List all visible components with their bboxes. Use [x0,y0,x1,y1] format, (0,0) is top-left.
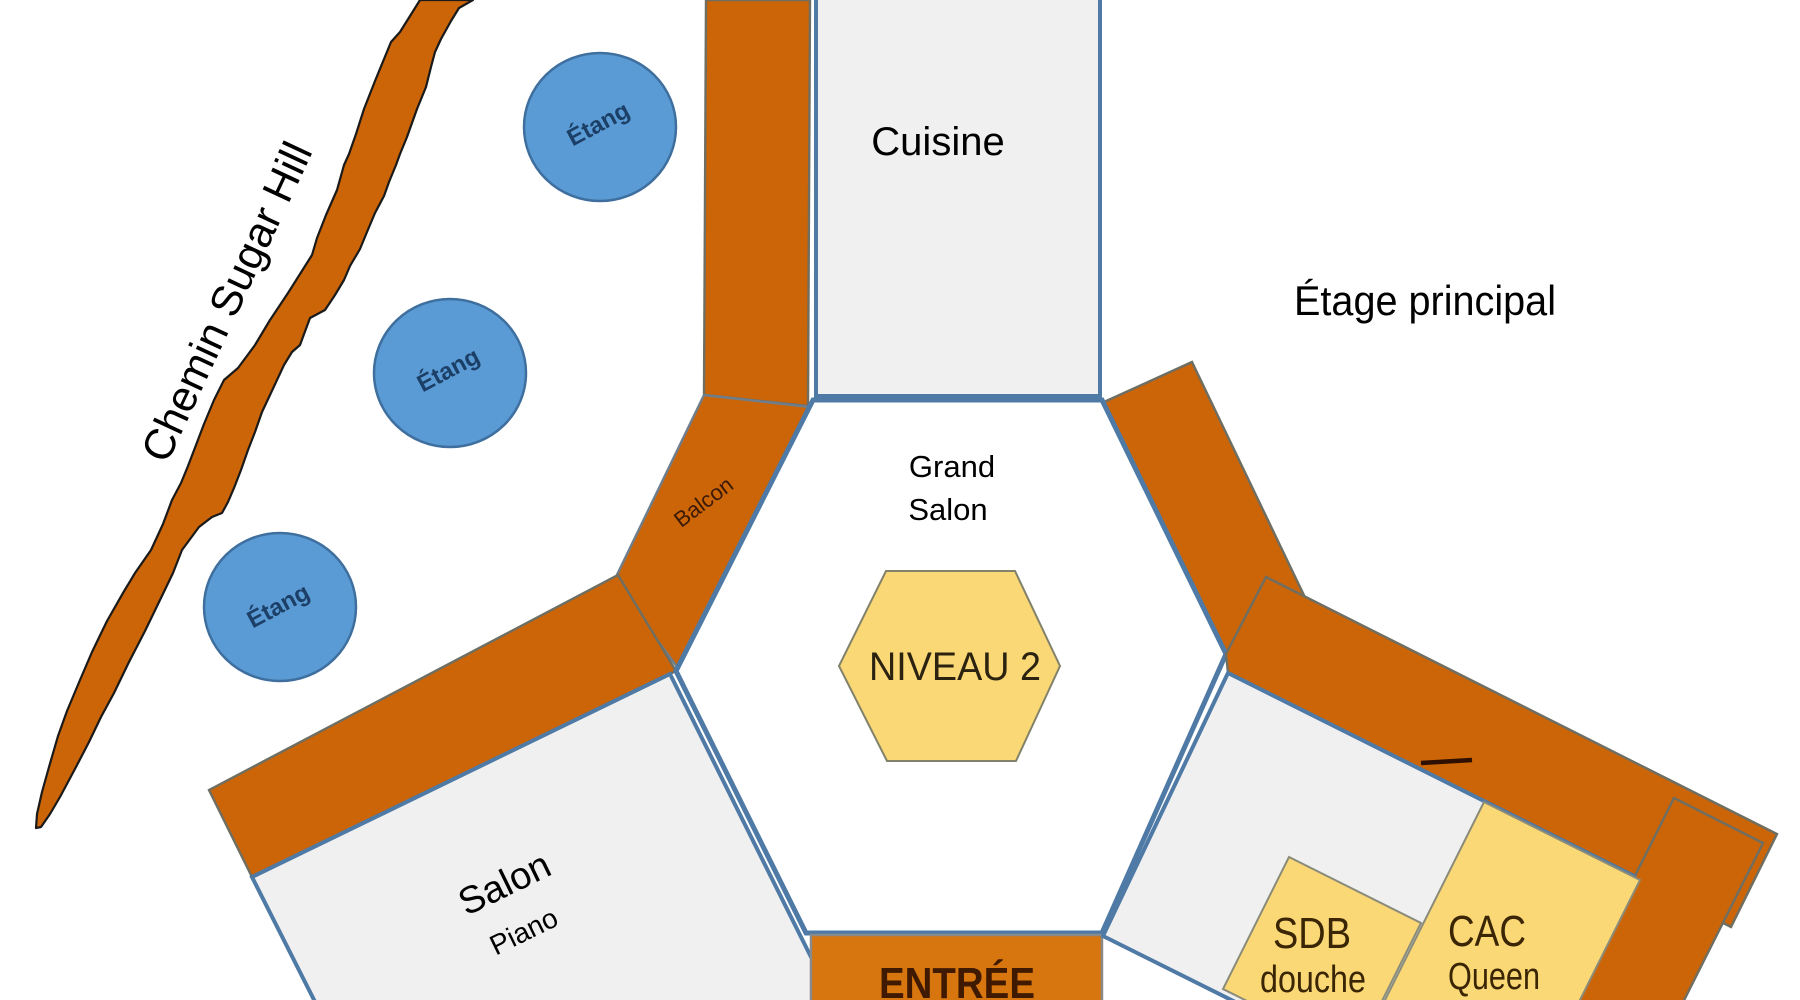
svg-text:CAC: CAC [1448,907,1526,956]
svg-text:ENTRÉE: ENTRÉE [879,958,1035,1000]
svg-text:Cuisine: Cuisine [871,120,1004,164]
svg-text:SDB: SDB [1273,909,1351,958]
svg-text:NIVEAU 2: NIVEAU 2 [869,645,1041,689]
svg-text:Queen: Queen [1448,956,1540,998]
svg-text:douche: douche [1260,959,1366,1000]
svg-text:Grand: Grand [909,449,995,484]
svg-text:Salon: Salon [908,492,987,527]
svg-text:Étage principal: Étage principal [1294,277,1556,324]
